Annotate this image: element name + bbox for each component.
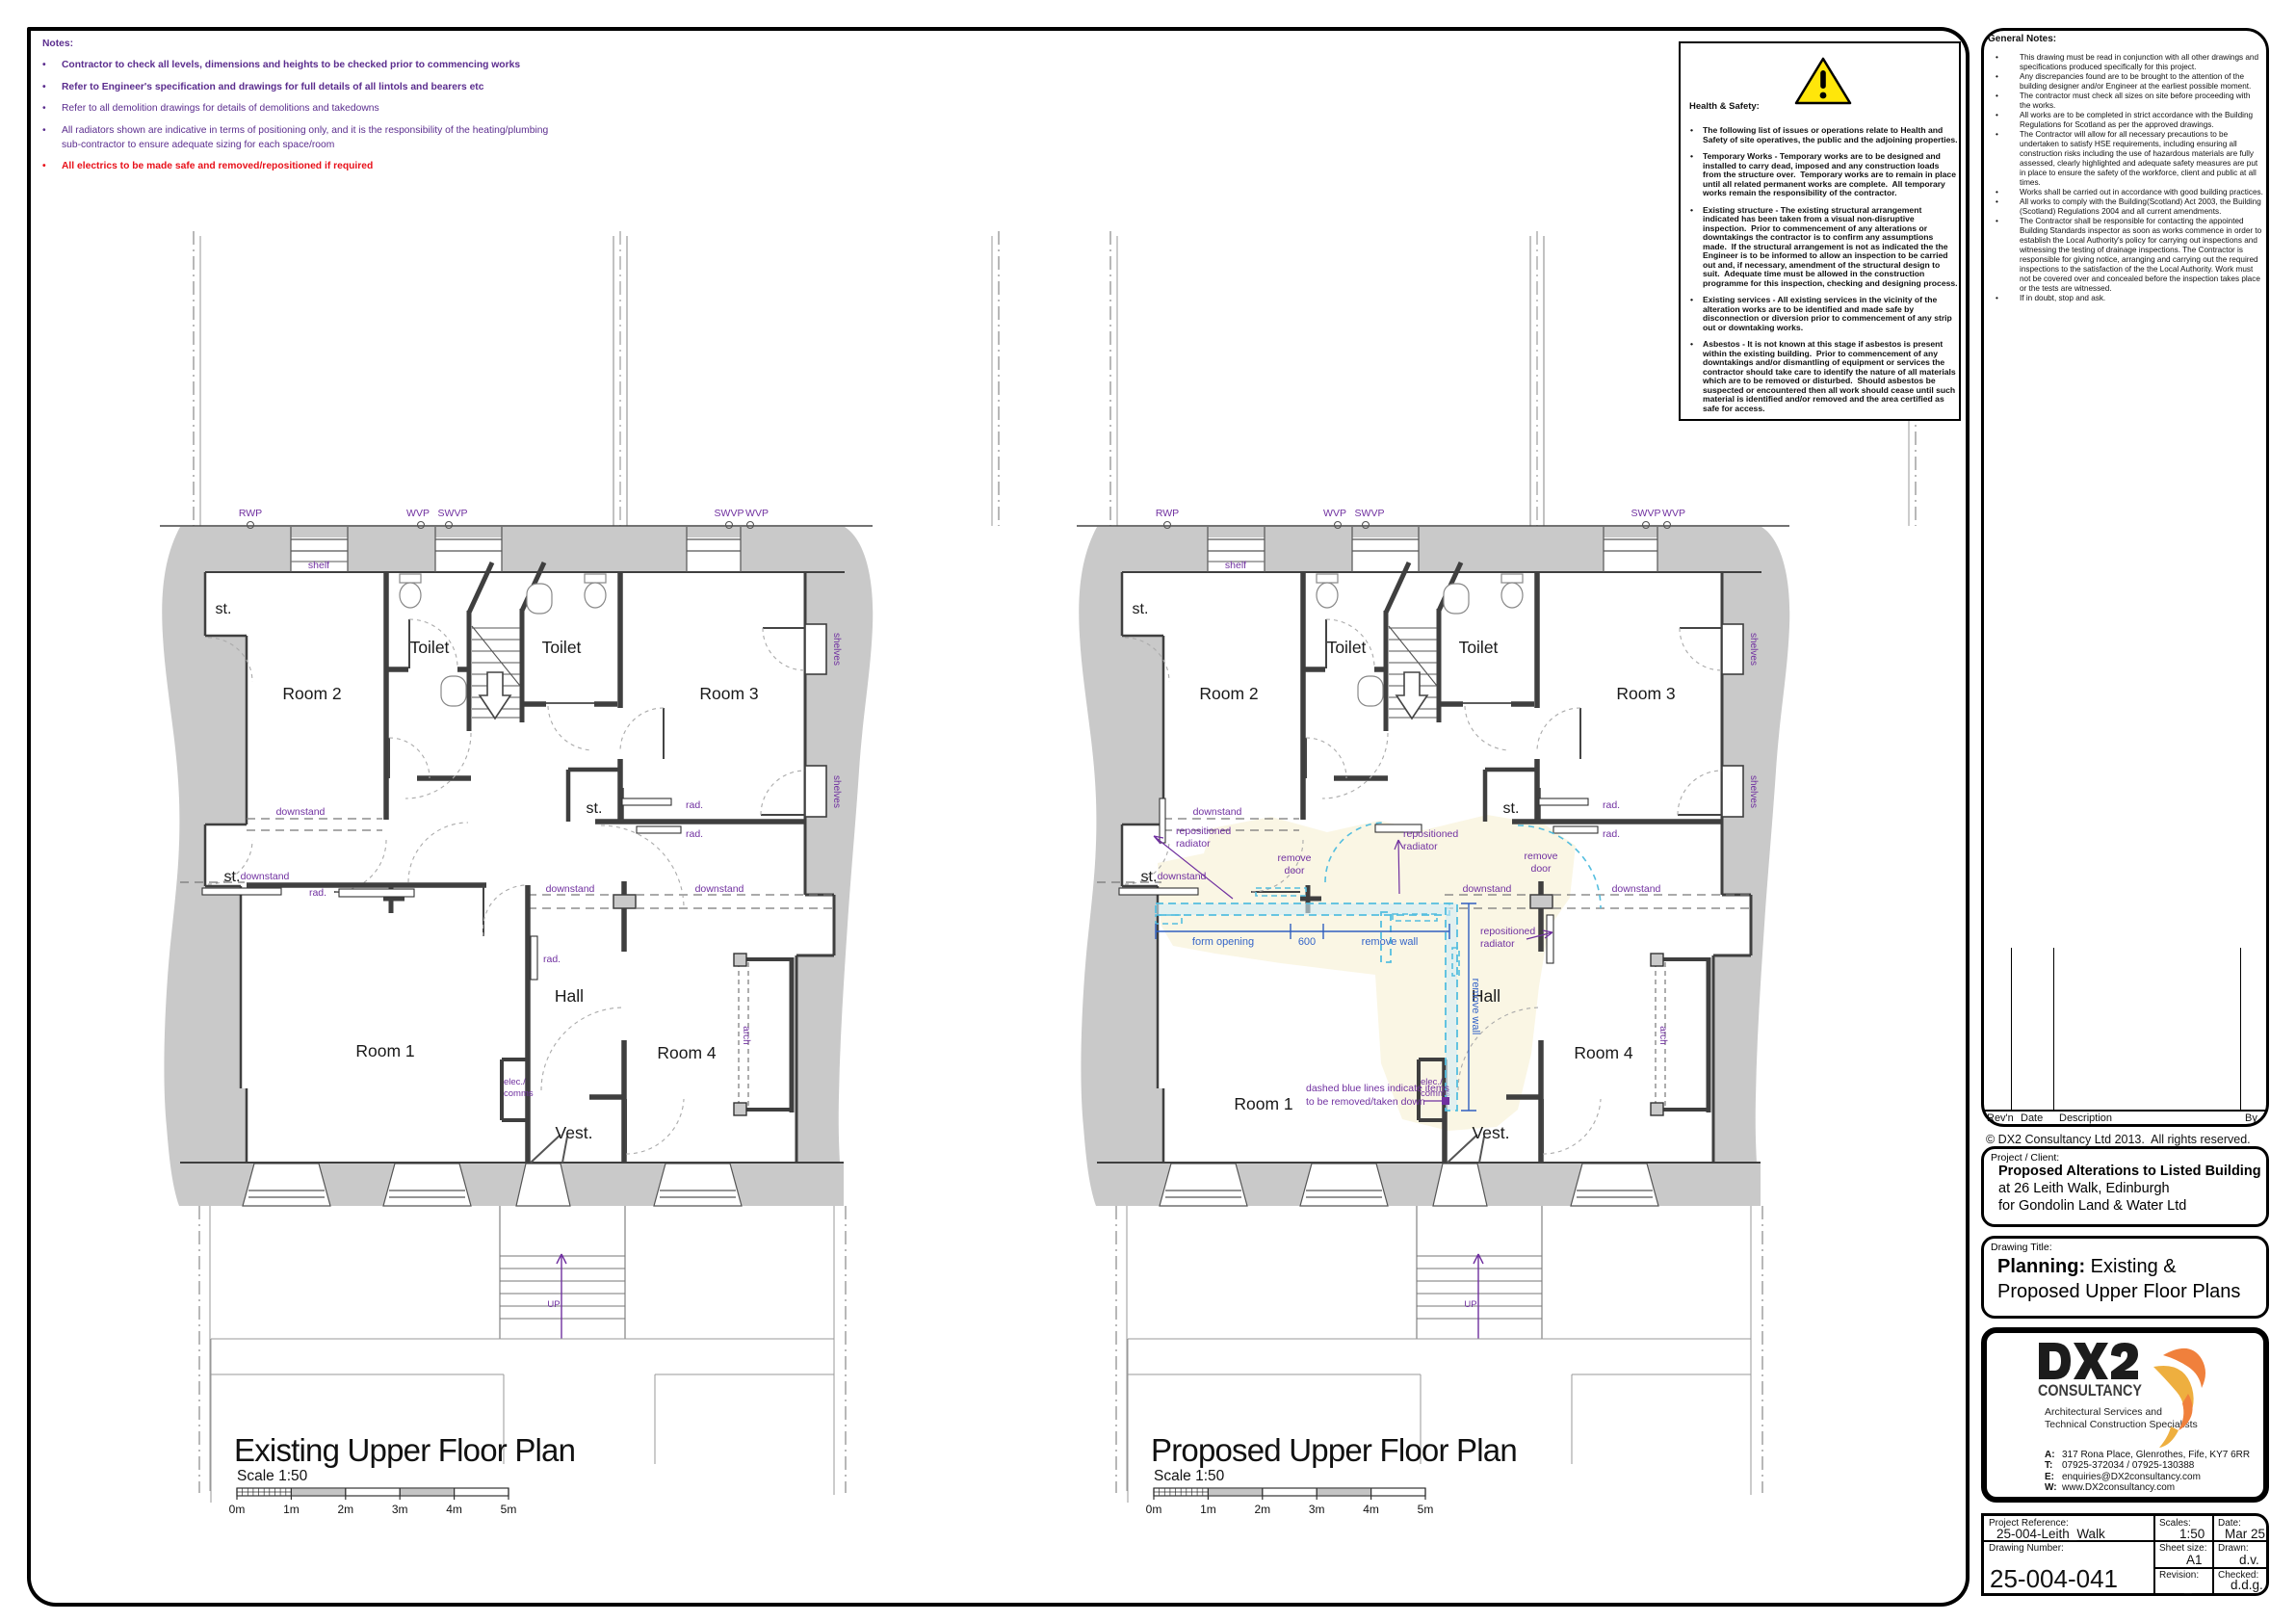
svg-text:CONSULTANCY: CONSULTANCY <box>2038 1381 2143 1400</box>
